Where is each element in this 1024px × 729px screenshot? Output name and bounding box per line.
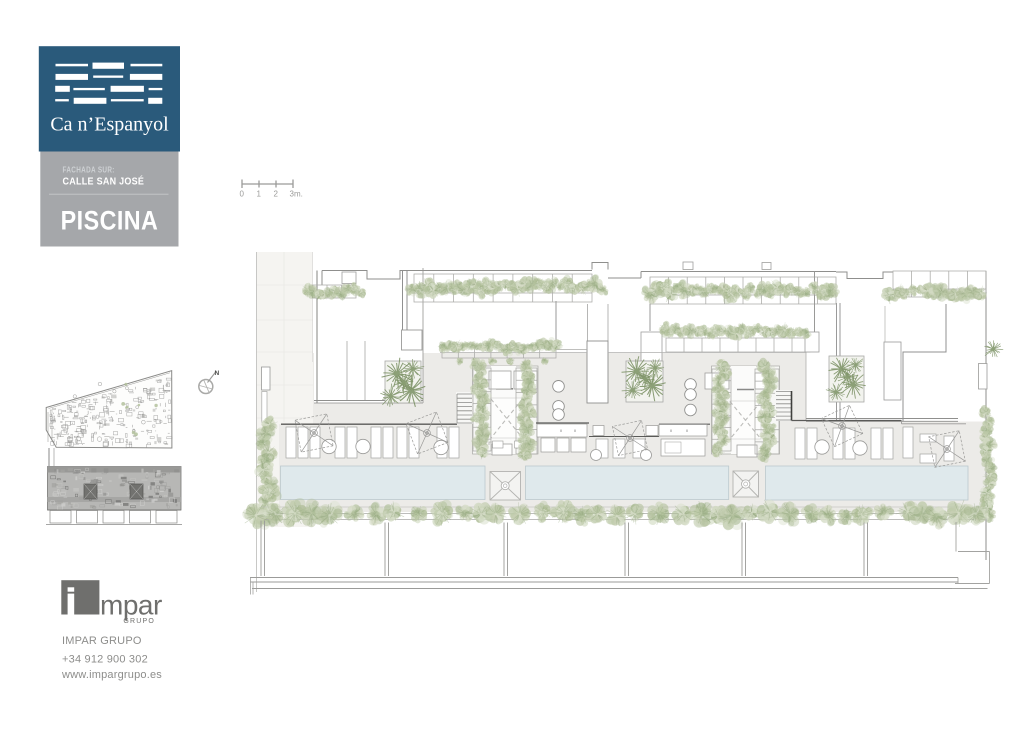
svg-text:Ca n’Espanyol: Ca n’Espanyol (50, 114, 169, 136)
svg-text:PISCINA: PISCINA (61, 206, 159, 236)
svg-text:CALLE SAN JOSÉ: CALLE SAN JOSÉ (63, 176, 145, 188)
svg-text:FACHADA SUR:: FACHADA SUR: (63, 165, 115, 175)
svg-text:2: 2 (274, 190, 279, 199)
svg-text:3m.: 3m. (290, 190, 303, 199)
svg-text:0: 0 (240, 190, 245, 199)
svg-text:www.impargrupo.es: www.impargrupo.es (61, 669, 162, 681)
svg-text:1: 1 (257, 190, 262, 199)
svg-text:mpar: mpar (100, 590, 162, 621)
svg-text:N: N (215, 370, 220, 377)
svg-text:IMPAR GRUPO: IMPAR GRUPO (62, 635, 142, 647)
svg-text:+34 912 900 302: +34 912 900 302 (62, 654, 148, 666)
svg-text:GRUPO: GRUPO (123, 618, 155, 625)
